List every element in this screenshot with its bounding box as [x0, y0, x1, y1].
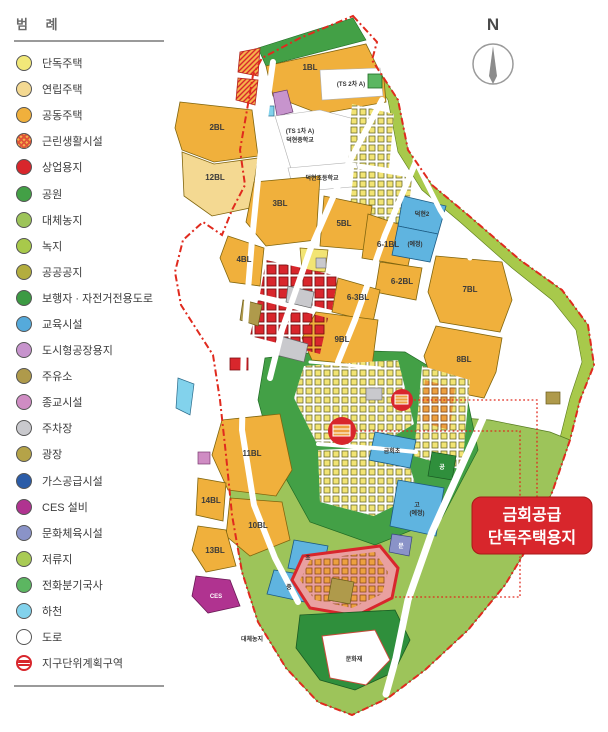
- legend-divider-top: [14, 40, 164, 42]
- legend-item-4: 상업용지: [14, 154, 166, 180]
- supply-callout: 금회공급 단독주택용지: [472, 497, 592, 554]
- legend-item-10: 교육시설: [14, 311, 166, 337]
- legend-swatch: [16, 473, 32, 489]
- label-3bl: 3BL: [272, 199, 287, 208]
- legend-item-14: 주차장: [14, 415, 166, 441]
- legend-item-8: 공공공지: [14, 259, 166, 285]
- parcel-7bl: [428, 256, 512, 332]
- legend-swatch: [16, 133, 32, 149]
- parcel-religious: [198, 452, 210, 464]
- legend-item-20: 전화분기국사: [14, 572, 166, 598]
- legend-swatch: [16, 368, 32, 384]
- site-plan-svg: 1BL (TS 2차 A) (TS 1차 A) 덕현중학교 2BL 12BL 덕…: [170, 0, 608, 727]
- legend-swatch: [16, 290, 32, 306]
- legend-item-label: 주유소: [42, 368, 72, 384]
- label-ts1: (TS 1차 A): [286, 127, 314, 135]
- legend-swatch: [16, 655, 32, 671]
- label-elem-school: 덕현초등학교: [305, 174, 339, 182]
- label-9bl: 9BL: [334, 335, 349, 344]
- legend-panel: 범 례 단독주택연립주택공동주택근린생활시설상업용지공원대체농지녹지공공공지보행…: [14, 10, 166, 695]
- legend-swatch: [16, 342, 32, 358]
- label-high-school: 고: [414, 502, 420, 509]
- legend-item-19: 저류지: [14, 546, 166, 572]
- north-compass: N: [473, 15, 513, 84]
- callout-line1: 금회공급: [503, 505, 562, 524]
- legend-item-12: 주유소: [14, 363, 166, 389]
- label-geumhoe-elem: 금회초: [384, 447, 401, 455]
- label-6-2bl: 6-2BL: [391, 277, 413, 286]
- legend-item-label: 전화분기국사: [42, 577, 103, 593]
- legend-item-15: 광장: [14, 441, 166, 467]
- legend-swatch: [16, 186, 32, 202]
- legend-divider-bottom: [14, 685, 164, 687]
- legend-item-6: 대체농지: [14, 207, 166, 233]
- legend-item-22: 도로: [14, 624, 166, 650]
- label-7bl: 7BL: [462, 285, 477, 294]
- highlight-marker: [328, 417, 356, 445]
- legend-swatch: [16, 212, 32, 228]
- legend-swatch: [16, 238, 32, 254]
- legend-item-9: 보행자 · 자전거전용도로: [14, 285, 166, 311]
- label-mid2: 중: [286, 583, 292, 591]
- callout-line2: 단독주택용지: [488, 529, 576, 547]
- label-6-1bl: 6-1BL: [377, 240, 399, 249]
- legend-item-18: 문화체육시설: [14, 520, 166, 546]
- legend-item-label: 도로: [42, 629, 62, 645]
- legend-item-5: 공원: [14, 180, 166, 206]
- legend-item-7: 녹지: [14, 233, 166, 259]
- legend-swatch: [16, 107, 32, 123]
- label-school-a: 덕현2: [415, 210, 430, 218]
- legend-item-label: 근린생활시설: [42, 133, 103, 149]
- parcel-telephone: [368, 74, 382, 88]
- parcel-gas-small: [546, 392, 560, 404]
- label-culture: 문: [398, 542, 404, 550]
- legend-swatch: [16, 629, 32, 645]
- legend-item-label: 상업용지: [42, 159, 82, 175]
- label-5bl: 5BL: [336, 219, 351, 228]
- legend-item-2: 공동주택: [14, 102, 166, 128]
- parcel-neighborhood-facility: [236, 78, 258, 105]
- legend-item-label: 대체농지: [42, 212, 82, 228]
- legend-swatch: [16, 603, 32, 619]
- legend-swatch: [16, 499, 32, 515]
- label-mid-school: 덕현중학교: [286, 136, 314, 144]
- land-use-map: 1BL (TS 2차 A) (TS 1차 A) 덕현중학교 2BL 12BL 덕…: [170, 0, 608, 727]
- legend-item-13: 종교시설: [14, 389, 166, 415]
- label-high-school-note: (예정): [409, 509, 424, 517]
- label-8bl: 8BL: [456, 355, 471, 364]
- parcel-2bl: [175, 102, 258, 162]
- legend-item-23: 지구단위계획구역: [14, 650, 166, 676]
- legend-swatch: [16, 55, 32, 71]
- legend-swatch: [16, 394, 32, 410]
- legend-swatch: [16, 446, 32, 462]
- parcel-12bl: [182, 152, 258, 216]
- legend-item-label: 지구단위계획구역: [42, 655, 123, 671]
- parcel-river-west: [176, 378, 194, 415]
- legend-item-label: 저류지: [42, 551, 72, 567]
- legend-title: 범 례: [16, 14, 166, 33]
- legend-swatch: [16, 525, 32, 541]
- legend-item-label: 문화체육시설: [42, 525, 103, 541]
- label-14bl: 14BL: [201, 496, 221, 505]
- label-farmland: 대체농지: [241, 635, 263, 643]
- legend-item-label: 연립주택: [42, 81, 82, 97]
- legend-item-0: 단독주택: [14, 50, 166, 76]
- label-park-small: 공: [439, 463, 445, 471]
- parcel-neighborhood-facility: [238, 48, 260, 76]
- legend-swatch: [16, 577, 32, 593]
- label-1bl: 1BL: [302, 63, 317, 72]
- legend-swatch: [16, 264, 32, 280]
- legend-item-16: 가스공급시설: [14, 468, 166, 494]
- label-6-3bl: 6-3BL: [347, 293, 369, 302]
- legend-item-label: 도시형공장용지: [42, 342, 113, 358]
- legend-item-1: 연립주택: [14, 76, 166, 102]
- label-heritage: 문화재: [346, 655, 363, 663]
- label-ts2: (TS 2차 A): [337, 80, 365, 88]
- legend-item-label: 공동주택: [42, 107, 82, 123]
- legend-item-label: 교육시설: [42, 316, 82, 332]
- legend-item-3: 근린생활시설: [14, 128, 166, 154]
- north-label: N: [487, 15, 499, 34]
- label-12bl: 12BL: [205, 173, 225, 182]
- legend-item-label: 주차장: [42, 420, 72, 436]
- legend-item-label: CES 설비: [42, 499, 88, 515]
- label-school-b: (예정): [407, 240, 422, 248]
- legend-item-label: 하천: [42, 603, 62, 619]
- legend-swatch: [16, 420, 32, 436]
- legend-swatch: [16, 316, 32, 332]
- legend-item-label: 보행자 · 자전거전용도로: [42, 290, 153, 306]
- legend-item-17: CES 설비: [14, 494, 166, 520]
- label-elem2: 초: [305, 554, 311, 562]
- legend-item-label: 단독주택: [42, 55, 82, 71]
- legend-item-list: 단독주택연립주택공동주택근린생활시설상업용지공원대체농지녹지공공공지보행자 · …: [14, 50, 166, 676]
- legend-swatch: [16, 81, 32, 97]
- legend-item-label: 종교시설: [42, 394, 82, 410]
- label-13bl: 13BL: [205, 546, 225, 555]
- legend-item-label: 광장: [42, 446, 62, 462]
- legend-item-label: 가스공급시설: [42, 473, 103, 489]
- legend-item-11: 도시형공장용지: [14, 337, 166, 363]
- legend-swatch: [16, 159, 32, 175]
- legend-item-label: 공공공지: [42, 264, 82, 280]
- label-ces: CES: [210, 594, 222, 600]
- highlight-marker: [391, 389, 413, 411]
- label-4bl: 4BL: [236, 255, 251, 264]
- label-10bl: 10BL: [248, 521, 268, 530]
- legend-item-label: 공원: [42, 186, 62, 202]
- label-11bl: 11BL: [242, 449, 261, 458]
- label-2bl: 2BL: [209, 123, 224, 132]
- parcel-plaza-small: [316, 258, 326, 268]
- legend-item-label: 녹지: [42, 238, 62, 254]
- legend-item-21: 하천: [14, 598, 166, 624]
- legend-swatch: [16, 551, 32, 567]
